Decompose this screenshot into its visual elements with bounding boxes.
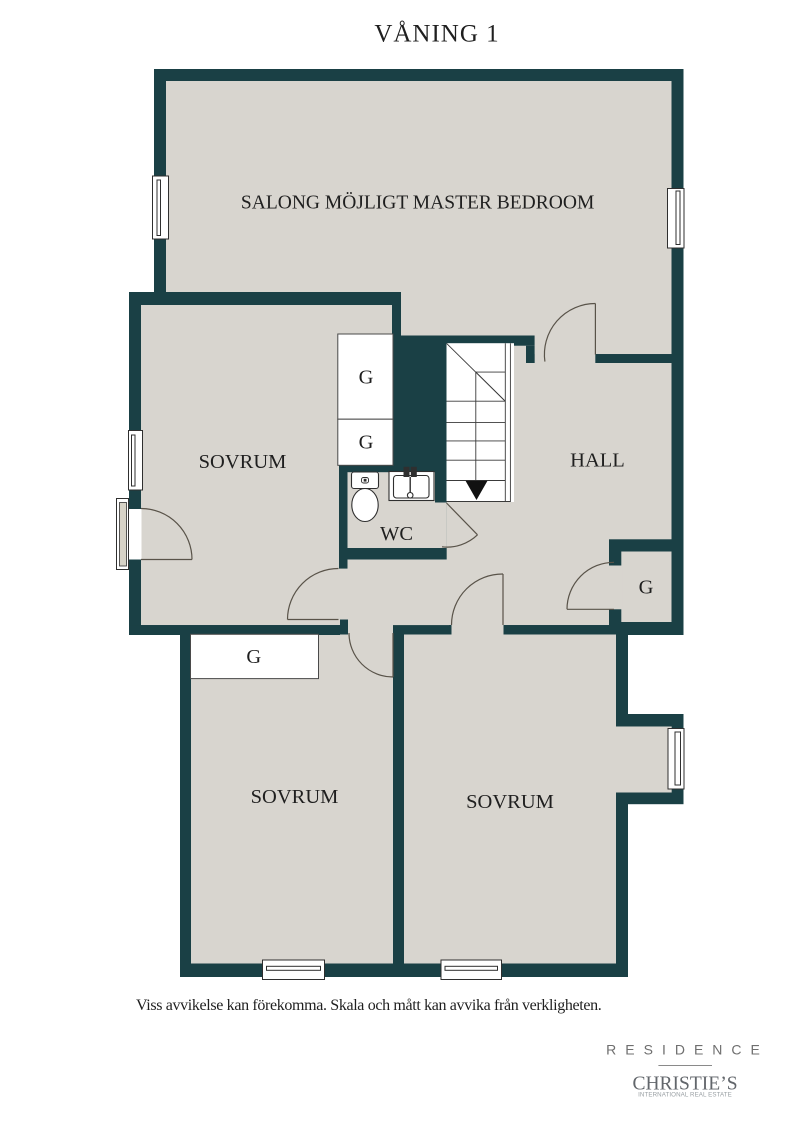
svg-text:INTERNATIONAL REAL ESTATE: INTERNATIONAL REAL ESTATE	[638, 1092, 732, 1099]
svg-text:SOVRUM: SOVRUM	[466, 791, 554, 813]
svg-text:G: G	[639, 577, 654, 599]
svg-text:Viss avvikelse kan förekomma.: Viss avvikelse kan förekomma. Skala och …	[136, 997, 601, 1014]
svg-text:SOVRUM: SOVRUM	[251, 786, 339, 808]
svg-text:G: G	[359, 367, 374, 389]
svg-text:VÅNING 1: VÅNING 1	[374, 21, 499, 48]
svg-text:RESIDENCE: RESIDENCE	[606, 1042, 769, 1058]
svg-text:HALL: HALL	[570, 450, 625, 472]
svg-text:G: G	[246, 646, 261, 668]
svg-text:WC: WC	[380, 523, 413, 545]
svg-text:SALONG MÖJLIGT MASTER BEDROOM: SALONG MÖJLIGT MASTER BEDROOM	[241, 193, 594, 214]
svg-text:SOVRUM: SOVRUM	[199, 451, 287, 473]
svg-text:G: G	[359, 432, 374, 454]
